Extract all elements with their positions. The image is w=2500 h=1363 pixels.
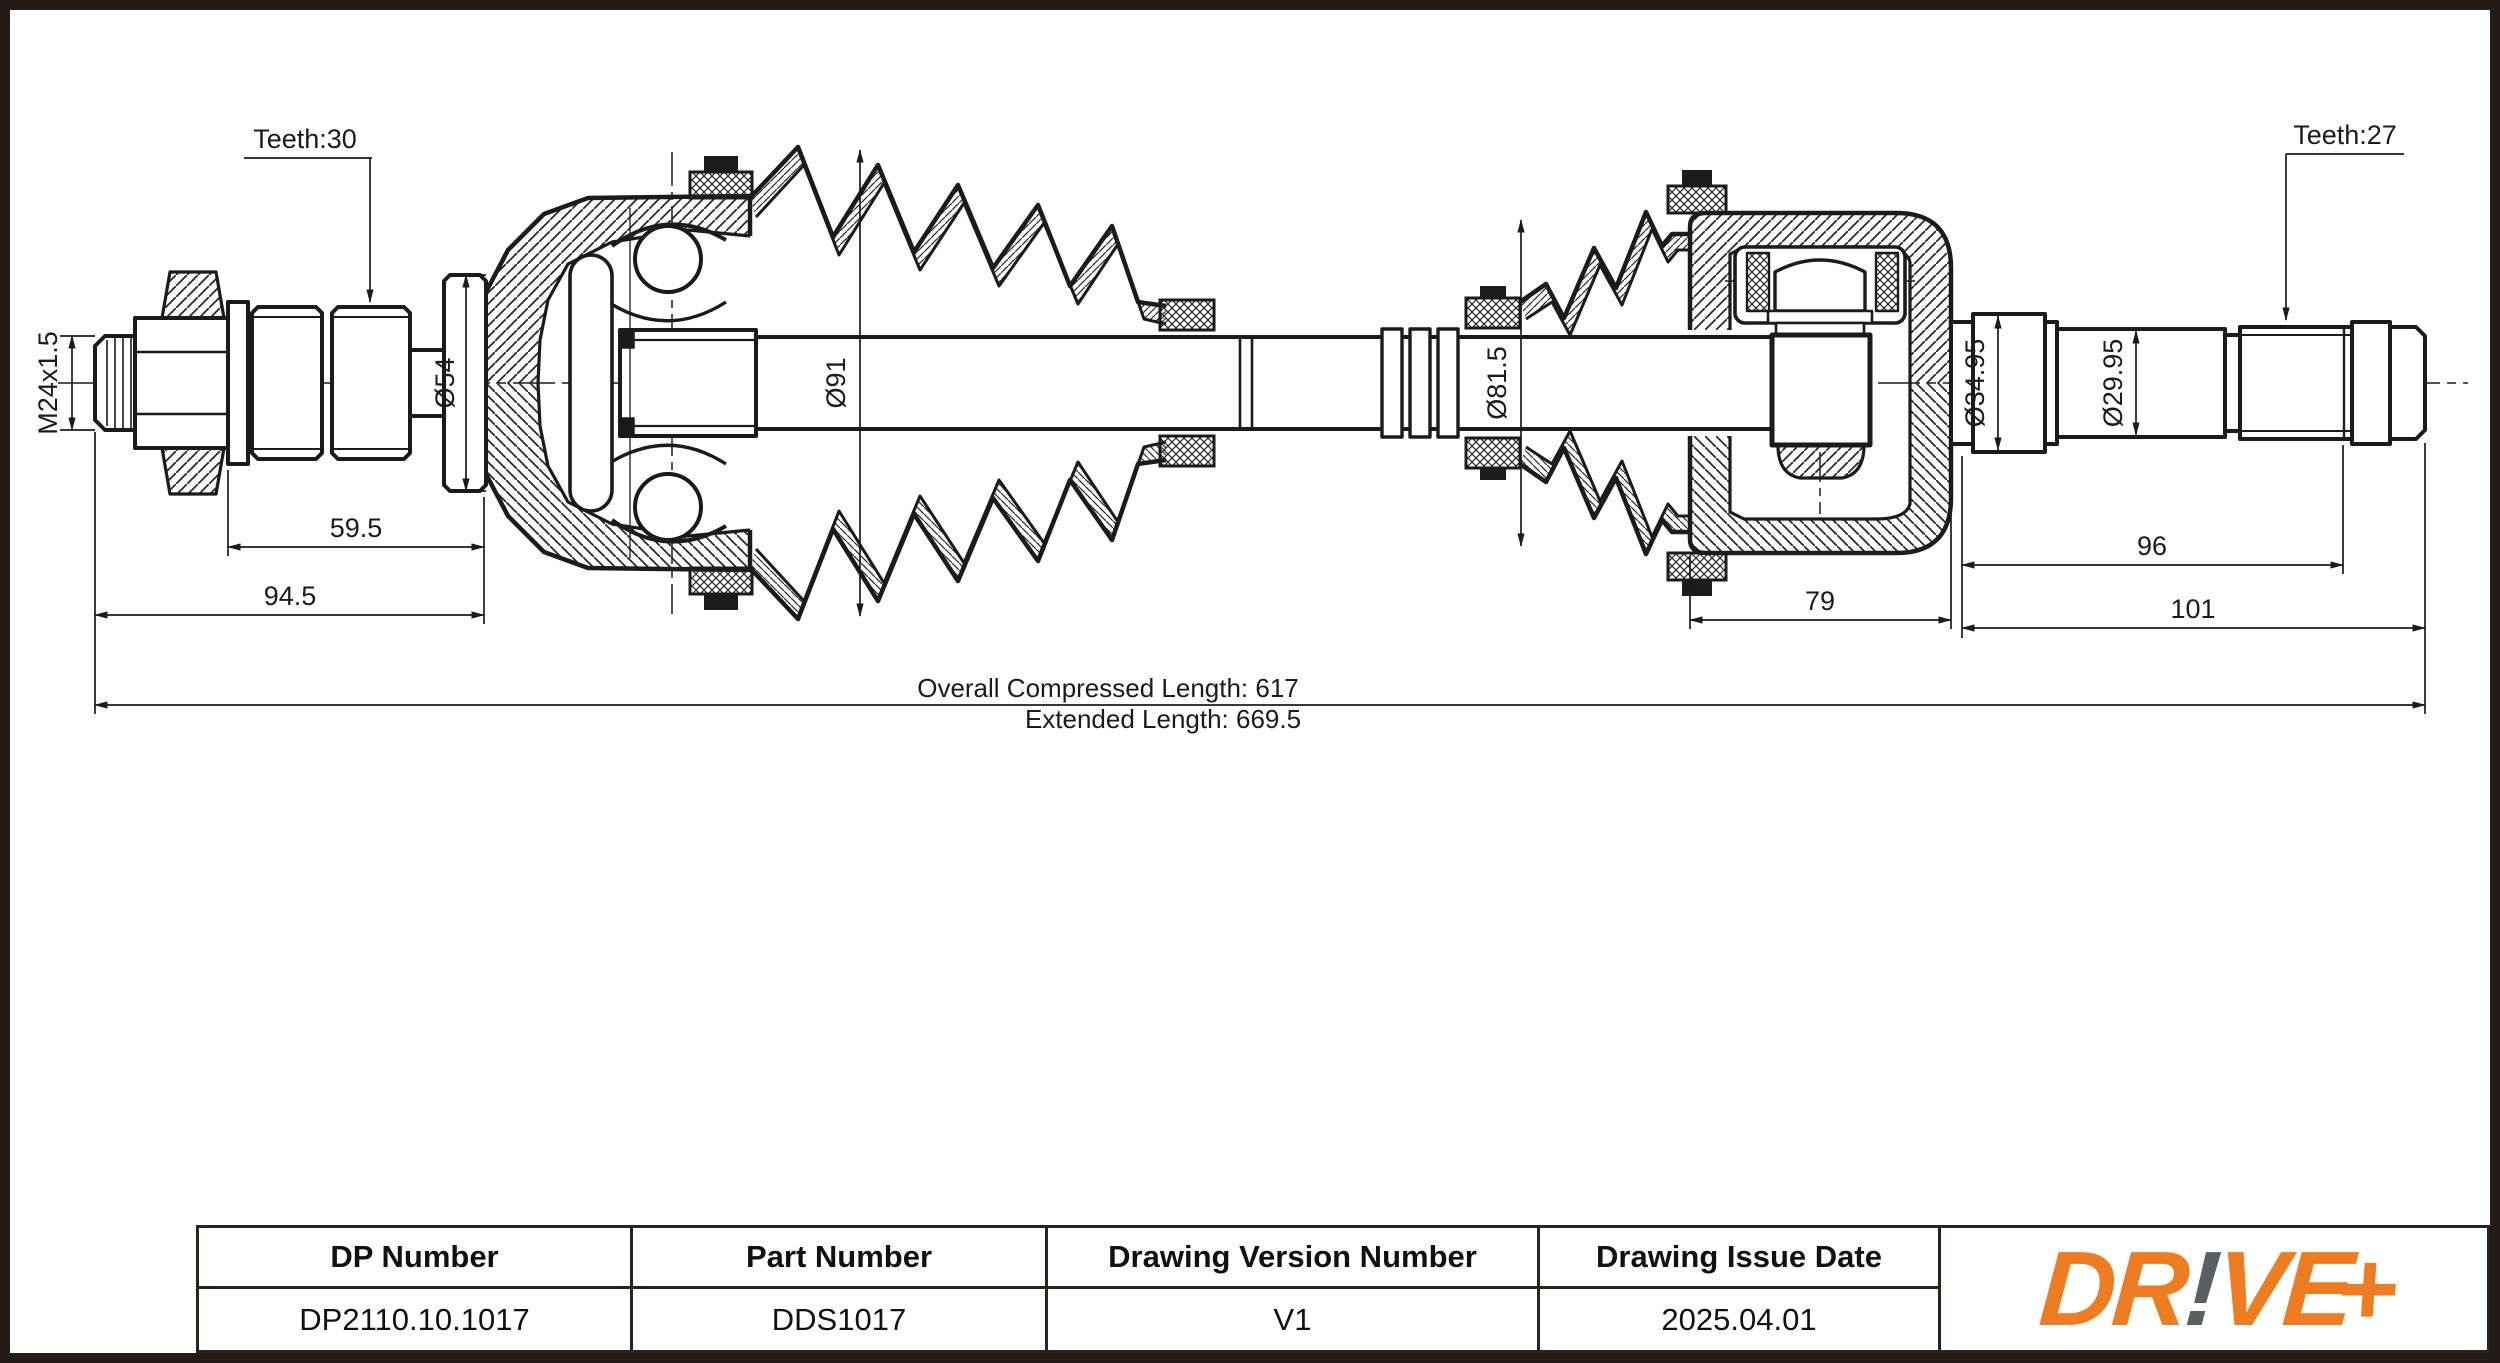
drawing-issue-date-header: Drawing Issue Date bbox=[1537, 1228, 1938, 1289]
thread-dim-label: M24x1.5 bbox=[33, 331, 63, 435]
axle-technical-drawing: Teeth:30 Teeth:27 M24x1.5 Ø54 Ø91 Ø81.5 … bbox=[0, 0, 2500, 1363]
output-end-ring bbox=[2352, 322, 2390, 444]
outer-boot-clamp-buckle bbox=[704, 156, 738, 172]
inner-boot-large-clamp bbox=[1668, 186, 1726, 213]
dia29-95-label: Ø29.95 bbox=[2098, 339, 2128, 428]
nut-lock-tab-bottom bbox=[162, 448, 224, 494]
teeth-left-label: Teeth:30 bbox=[253, 124, 357, 154]
shaft-rib bbox=[1410, 329, 1430, 437]
output-tip bbox=[2390, 327, 2425, 439]
logo-dr: DR bbox=[2036, 1230, 2189, 1348]
washer bbox=[228, 302, 248, 464]
outer-boot-small-clamp bbox=[1160, 300, 1214, 330]
dia91-label: Ø91 bbox=[821, 357, 851, 408]
joint-cage bbox=[570, 255, 612, 511]
inner-boot-clamp-buckle bbox=[1682, 170, 1712, 186]
output-spline bbox=[2240, 327, 2352, 439]
spline-land-2 bbox=[332, 307, 410, 459]
outer-boot-large-clamp bbox=[690, 172, 752, 198]
drawing-sheet: Teeth:30 Teeth:27 M24x1.5 Ø54 Ø91 Ø81.5 … bbox=[0, 0, 2500, 1363]
hub-nut bbox=[135, 318, 228, 448]
drawing-version-value: V1 bbox=[1045, 1289, 1537, 1350]
inner-race bbox=[620, 330, 756, 436]
part-number-value: DDS1017 bbox=[630, 1289, 1045, 1350]
trunnion-sleeve bbox=[1772, 335, 1870, 445]
drawing-issue-date-value: 2025.04.01 bbox=[1537, 1289, 1938, 1350]
teeth-right-label: Teeth:27 bbox=[2293, 120, 2397, 150]
dim-94-5-label: 94.5 bbox=[264, 581, 317, 611]
nut-lock-tab-top bbox=[162, 272, 224, 318]
brand-logo-cell: DR!VE+ bbox=[1938, 1228, 2493, 1350]
dp-number-header: DP Number bbox=[199, 1228, 630, 1289]
bearing-ball bbox=[635, 226, 701, 292]
shaft-rib bbox=[1382, 329, 1402, 437]
title-block-table: DP Number Part Number Drawing Version Nu… bbox=[196, 1225, 2490, 1353]
trunnion-cap bbox=[1778, 445, 1864, 478]
driveplus-logo: DR!VE+ bbox=[2036, 1236, 2397, 1342]
inner-boot-small-clamp bbox=[1466, 298, 1520, 328]
output-groove bbox=[2225, 335, 2240, 431]
dim-79-label: 79 bbox=[1805, 586, 1835, 616]
dia54-label: Ø54 bbox=[430, 357, 460, 408]
spline-land-1 bbox=[252, 307, 322, 459]
dp-number-value: DP2110.10.1017 bbox=[199, 1289, 630, 1350]
dim-101-label: 101 bbox=[2170, 594, 2215, 624]
extended-length-label: Extended Length: 669.5 bbox=[1025, 704, 1301, 734]
dim-59-5-label: 59.5 bbox=[330, 513, 383, 543]
dia81-5-label: Ø81.5 bbox=[1482, 346, 1512, 420]
shaft-rib bbox=[1438, 329, 1458, 437]
drawing-version-header: Drawing Version Number bbox=[1045, 1228, 1537, 1289]
tripod-bearing bbox=[1735, 247, 1905, 335]
axle-shaft bbox=[756, 337, 1822, 429]
output-section-29-95 bbox=[2057, 329, 2225, 437]
dim-96-label: 96 bbox=[2137, 531, 2167, 561]
part-number-header: Part Number bbox=[630, 1228, 1045, 1289]
overall-compressed-length-label: Overall Compressed Length: 617 bbox=[917, 673, 1299, 703]
logo-plus: + bbox=[2332, 1230, 2398, 1348]
dia34-95-label: Ø34.95 bbox=[1960, 339, 1990, 428]
